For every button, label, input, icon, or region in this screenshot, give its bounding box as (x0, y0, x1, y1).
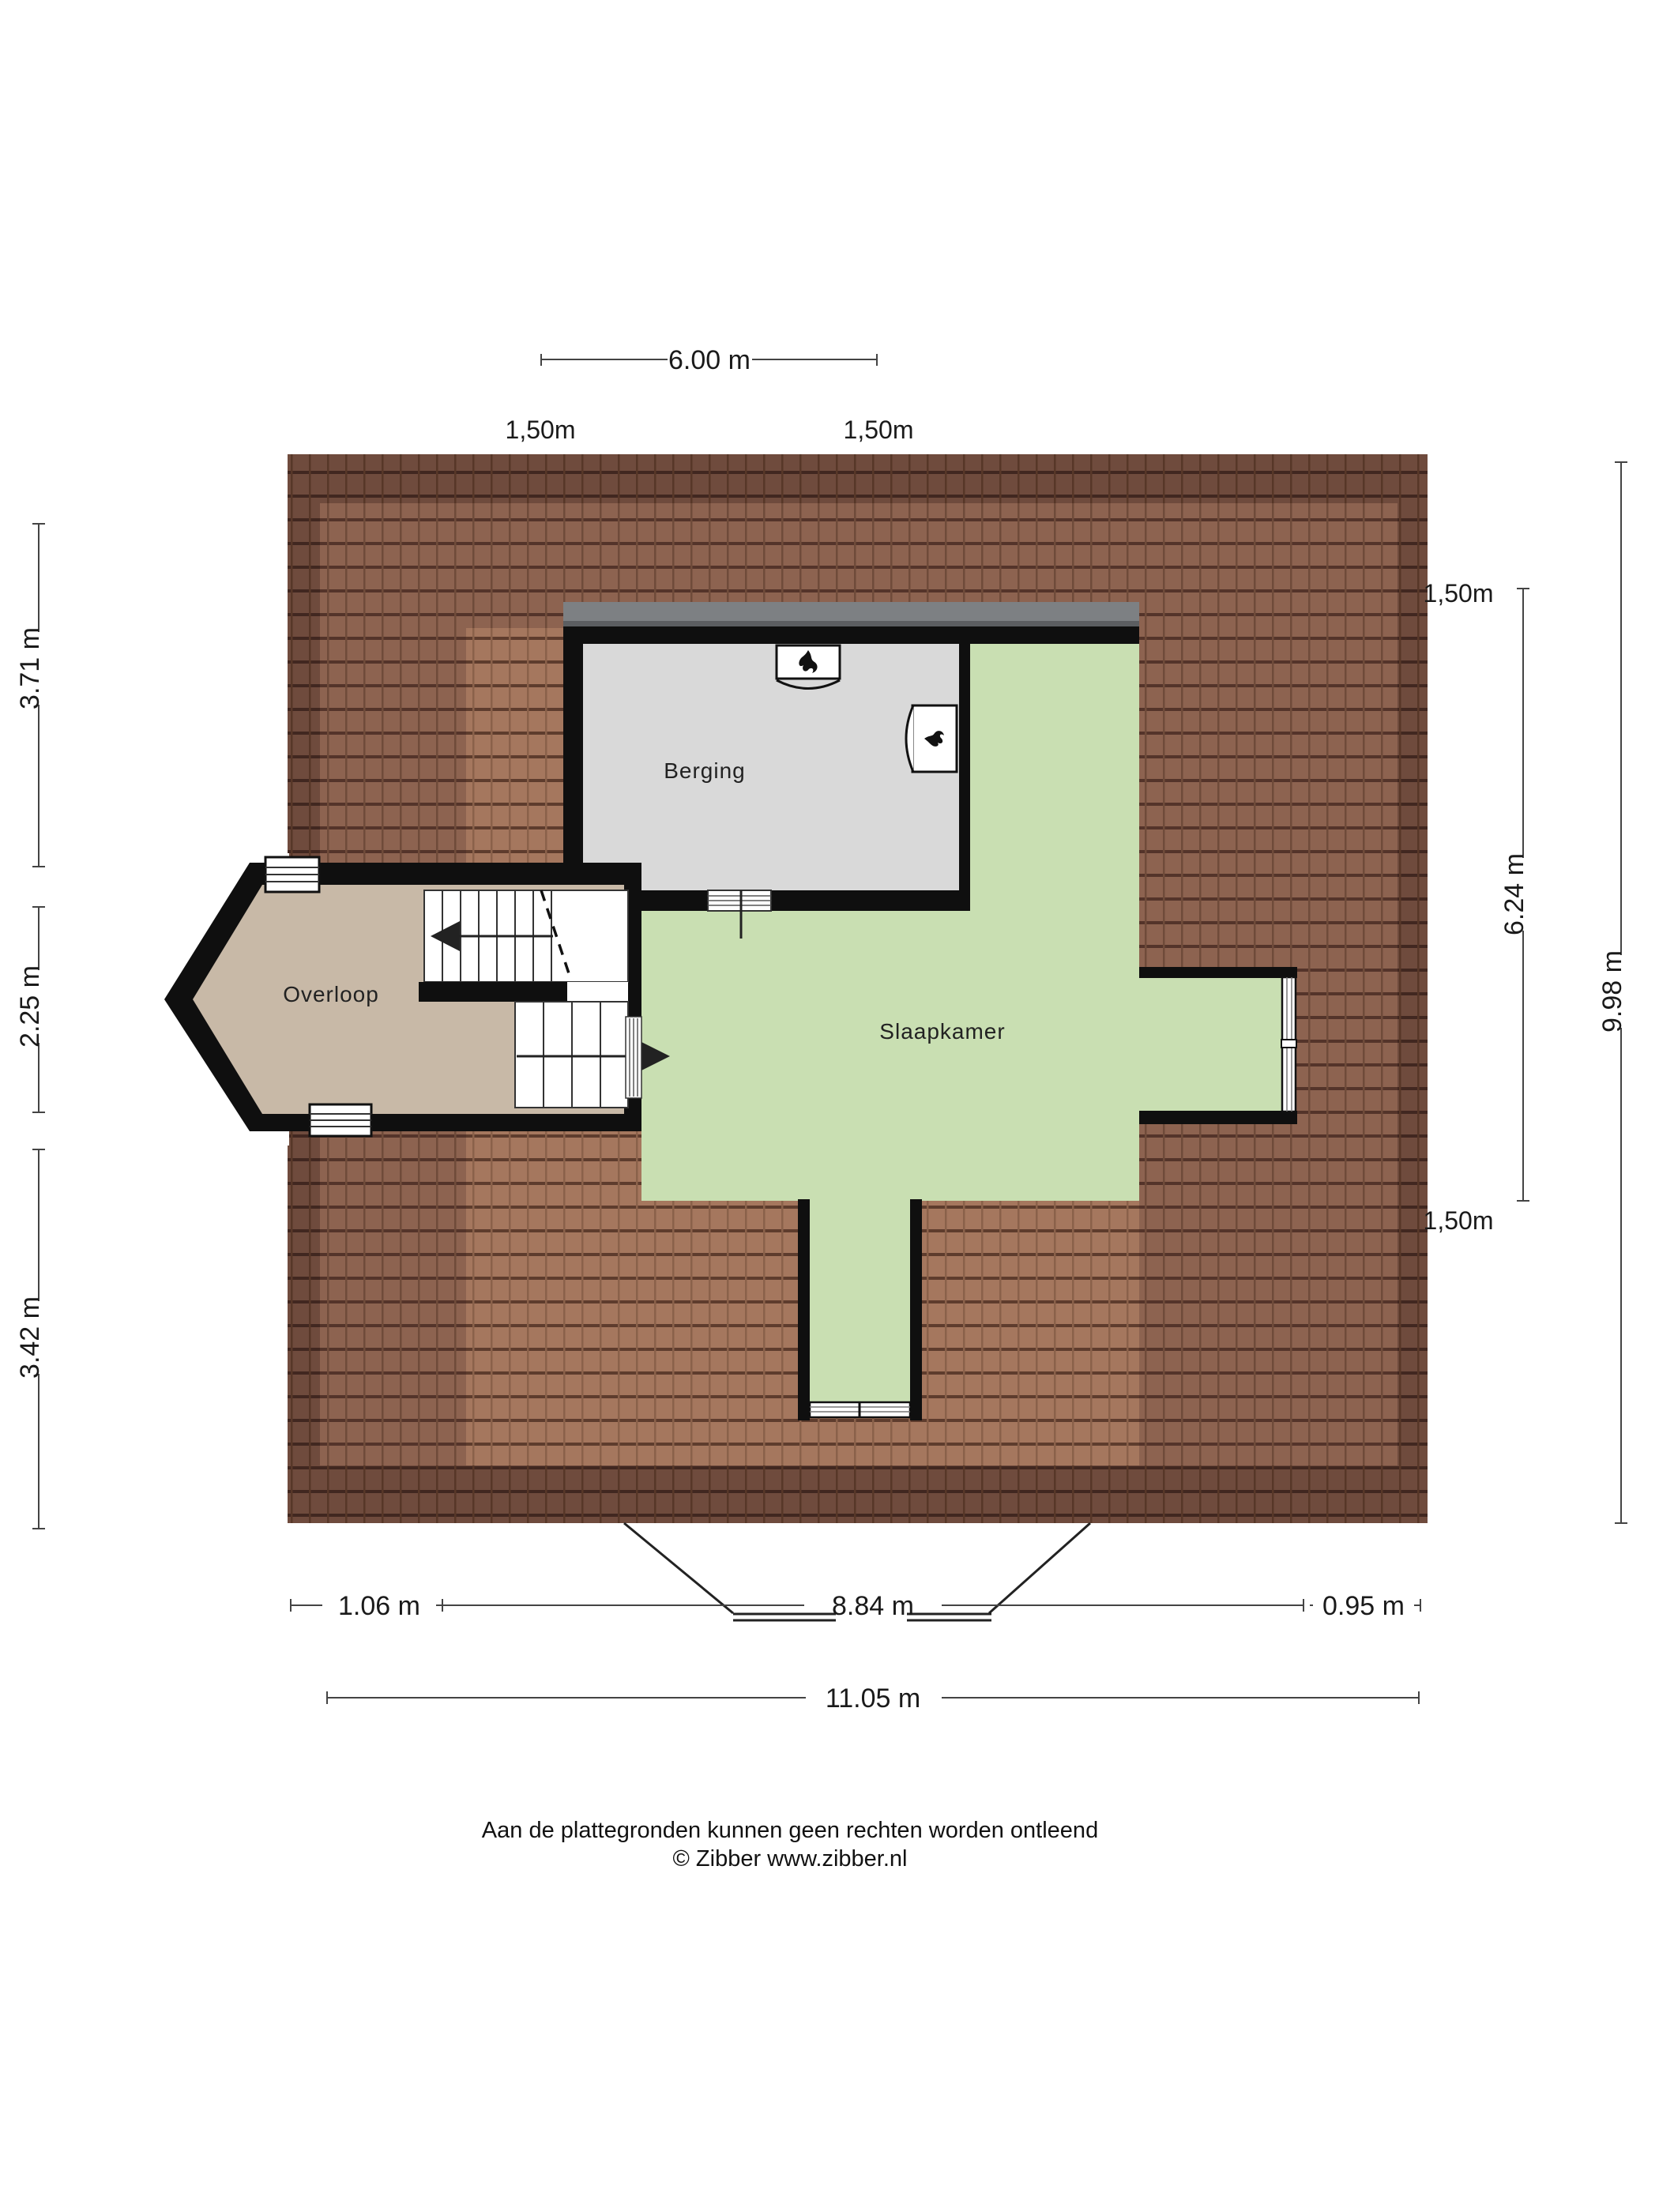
dimension-label-right-inner: 6.24 m (1499, 853, 1529, 935)
dimension-bottom-split: 1.06 m 8.84 m 0.95 m (291, 1591, 1420, 1621)
berging-room (582, 641, 959, 893)
dormer-flat-roof-band (563, 602, 1139, 624)
dimension-label-bottom-total: 11.05 m (826, 1683, 920, 1714)
wall-right-dormer-bottom (1139, 1111, 1297, 1124)
dimension-label-right-bottom-margin: 1,50m (1424, 1206, 1494, 1235)
dimension-label-top-width: 6.00 m (668, 345, 750, 375)
dimension-left-bottom: 3.42 m (15, 1149, 45, 1529)
wall-berging-slaapkamer-divider (959, 641, 970, 911)
right-dormer-window (1281, 977, 1296, 1112)
dimension-left-middle: 2.25 m (15, 907, 45, 1112)
dimension-label-bottom-middle: 8.84 m (832, 1591, 914, 1621)
footer-disclaimer: Aan de plattegronden kunnen geen rechten… (482, 1818, 1098, 1843)
dimension-label-top-left-margin: 1,50m (506, 416, 576, 444)
dimension-bottom-total: 11.05 m (327, 1683, 1419, 1714)
dimension-label-top-right-margin: 1,50m (844, 416, 914, 444)
dimension-right-total: 9.98 m (1597, 462, 1627, 1523)
dormer-roof-shadow (563, 621, 1139, 627)
dimension-right-inner: 6.24 m (1499, 589, 1529, 1201)
dimension-label-left-bottom: 3.42 m (15, 1296, 45, 1379)
dimension-label-bottom-right: 0.95 m (1322, 1591, 1405, 1621)
dimension-left-top: 3.71 m (15, 524, 45, 867)
dimension-label-right-top-margin: 1,50m (1424, 579, 1494, 608)
wall-bottom-dormer-right (910, 1199, 922, 1420)
dimension-label-right-total: 9.98 m (1597, 950, 1627, 1033)
bottom-dormer-window (810, 1402, 910, 1417)
stair-landing (567, 982, 628, 1002)
bay-window-bottom (310, 1104, 371, 1136)
bay-window-top (265, 857, 319, 892)
footer-copyright: © Zibber www.zibber.nl (673, 1846, 908, 1872)
dimension-label-left-middle: 2.25 m (15, 965, 45, 1048)
overloop-label: Overloop (283, 982, 379, 1006)
slaapkamer-label: Slaapkamer (879, 1019, 1005, 1044)
dimension-label-left-top: 3.71 m (15, 627, 45, 709)
wall-dormer-top (563, 626, 1139, 644)
boiler-unit-right (906, 705, 957, 772)
stair-right-opening (626, 1017, 641, 1098)
wall-berging-bottom-right (771, 890, 959, 911)
berging-label: Berging (664, 758, 746, 783)
dimension-top-width: 6.00 m (541, 345, 877, 375)
floorplan-canvas: Berging Slaapkamer (0, 0, 1659, 2212)
dimension-label-bottom-left: 1.06 m (338, 1591, 420, 1621)
wall-bottom-dormer-left (798, 1199, 810, 1420)
staircase-upper (424, 890, 628, 982)
wall-stair-middle (419, 982, 567, 1002)
wall-right-dormer-top (1139, 967, 1297, 978)
